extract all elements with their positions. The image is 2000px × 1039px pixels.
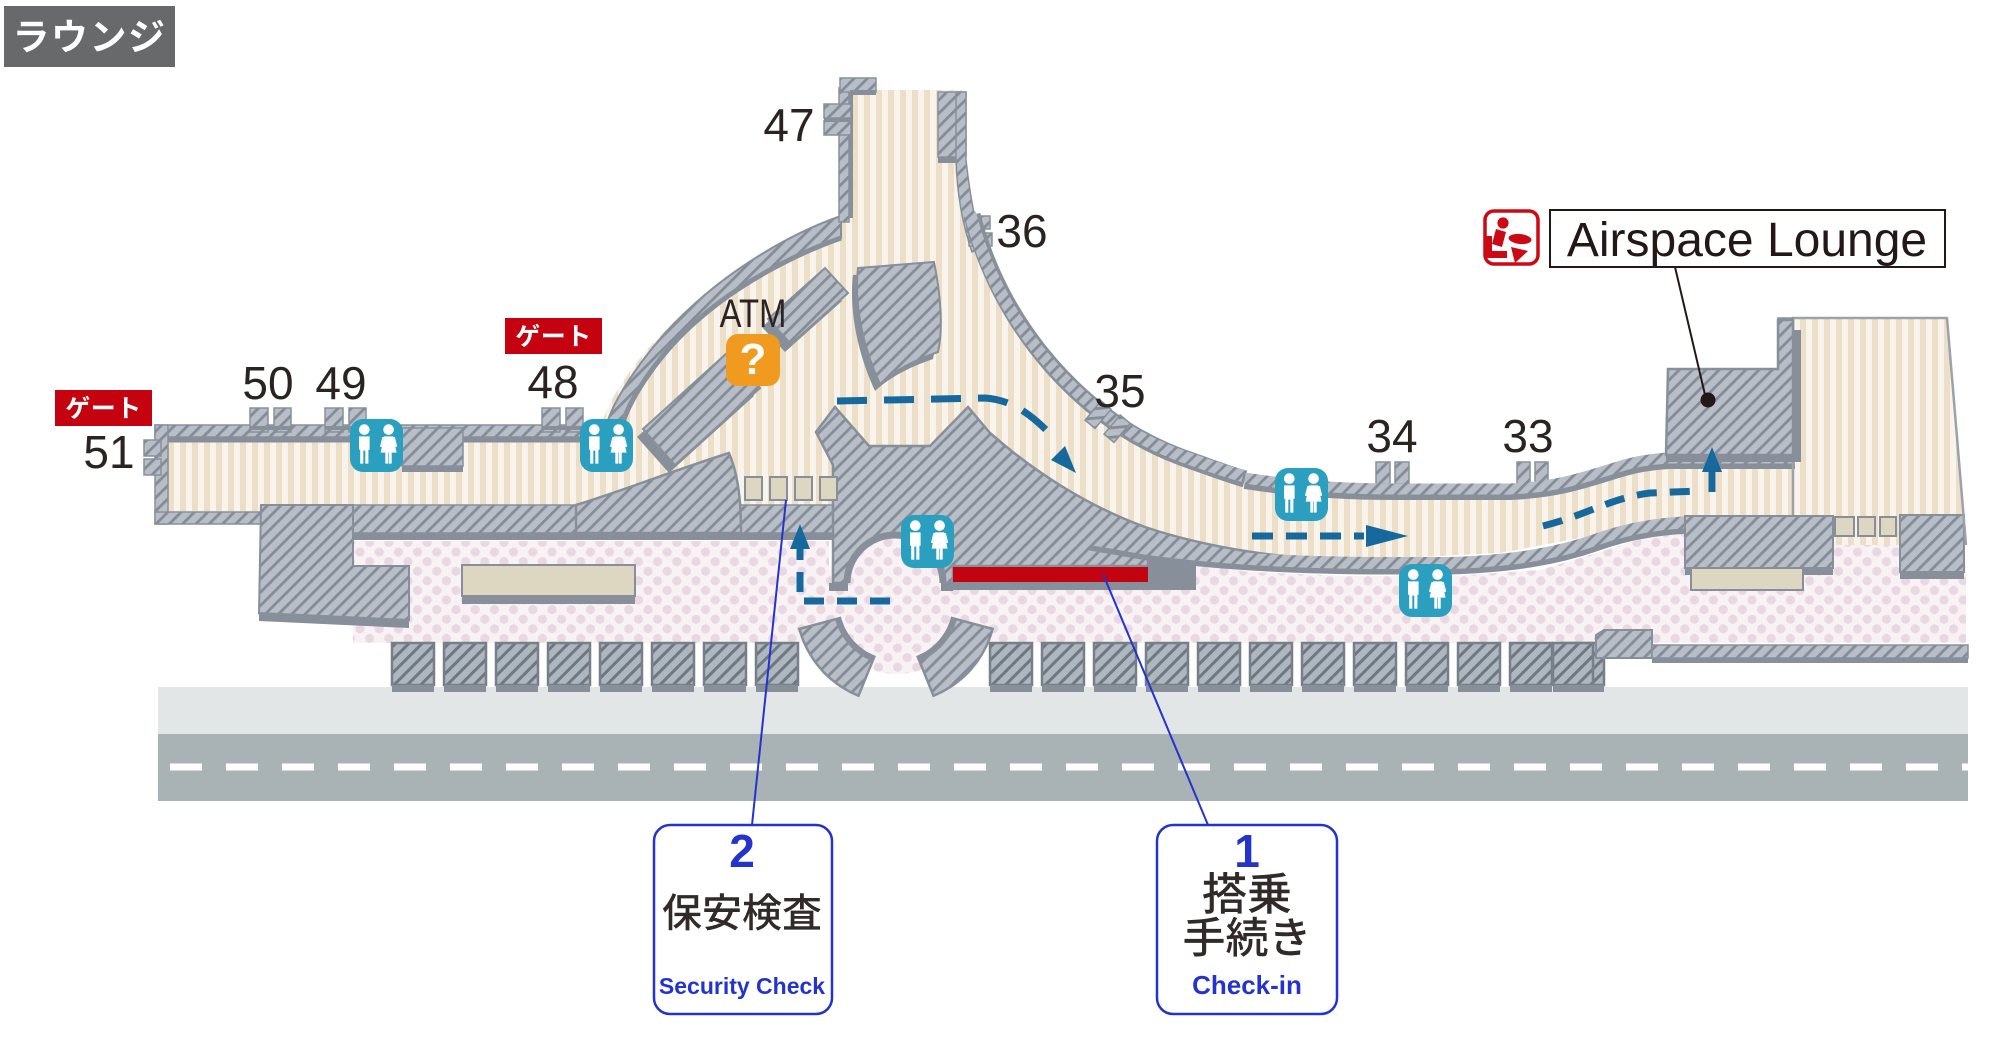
svg-text:Check-in: Check-in: [1192, 970, 1302, 1000]
svg-text:51: 51: [83, 426, 134, 478]
svg-text:2: 2: [729, 825, 755, 877]
svg-text:35: 35: [1094, 365, 1145, 417]
svg-text:Airspace Lounge: Airspace Lounge: [1567, 214, 1927, 267]
svg-text:34: 34: [1366, 410, 1417, 462]
svg-text:50: 50: [242, 357, 293, 409]
svg-text:Security Check: Security Check: [659, 973, 825, 999]
svg-text:47: 47: [763, 99, 814, 151]
svg-text:36: 36: [996, 205, 1047, 257]
svg-text:1: 1: [1234, 825, 1260, 877]
svg-text:ATM: ATM: [720, 291, 787, 336]
svg-text:49: 49: [315, 357, 366, 409]
svg-text:33: 33: [1502, 410, 1553, 462]
svg-text:48: 48: [527, 356, 578, 408]
svg-text:?: ?: [740, 335, 767, 384]
